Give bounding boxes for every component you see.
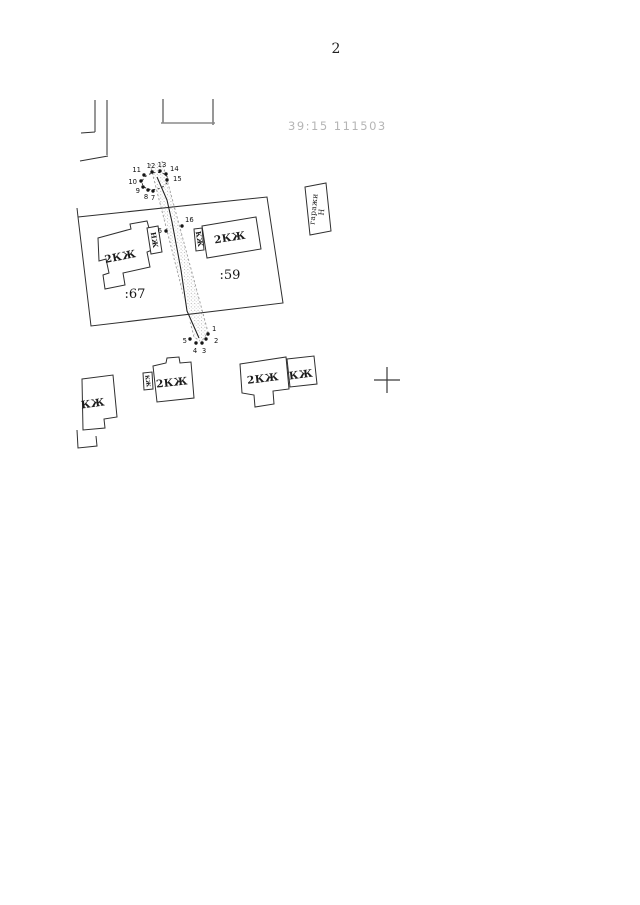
survey-point-3	[200, 341, 203, 344]
survey-point-8	[146, 188, 149, 191]
point-label-15: 15	[173, 175, 182, 183]
survey-point-6	[164, 229, 167, 232]
partial-building-nw	[80, 100, 108, 161]
parcel-59-label: :59	[220, 268, 241, 283]
survey-point-15	[165, 178, 168, 181]
grid-cross-icon	[374, 367, 400, 393]
cadastral-quarter-label: 39:15 111503	[288, 119, 387, 133]
point-label-12: 12	[147, 162, 156, 170]
survey-point-14	[164, 172, 167, 175]
survey-point-10	[139, 179, 142, 182]
point-label-13: 13	[158, 161, 167, 169]
point-label-3: 3	[202, 347, 206, 355]
point-label-10: 10	[128, 178, 137, 186]
survey-point-1	[206, 332, 209, 335]
point-label-9: 9	[136, 187, 140, 195]
point-label-2: 2	[214, 337, 218, 345]
survey-point-16	[180, 224, 183, 227]
point-label-7: 7	[151, 194, 155, 202]
survey-point-7	[151, 189, 154, 192]
survey-point-4	[194, 341, 197, 344]
survey-point-2	[204, 337, 207, 340]
garage-mark-label: Н	[317, 208, 327, 216]
partial-building-n-walls	[163, 99, 213, 125]
point-label-4: 4	[193, 347, 197, 355]
point-label-5: 5	[183, 337, 187, 345]
point-label-11: 11	[132, 166, 141, 174]
point-label-8: 8	[144, 193, 148, 201]
cadastral-plan-drawing: 2 39:15 111503	[0, 0, 640, 905]
survey-point-9	[141, 185, 144, 188]
parcel-67-label: :67	[125, 287, 146, 302]
survey-point-11	[142, 173, 145, 176]
scanned-plan-page: 2 39:15 111503	[0, 0, 640, 905]
point-label-14: 14	[170, 165, 179, 173]
survey-point-12	[150, 170, 153, 173]
building-w-extension	[77, 430, 97, 448]
survey-point-5	[188, 337, 191, 340]
survey-point-13	[158, 169, 161, 172]
point-label-1: 1	[212, 325, 216, 333]
point-label-16: 16	[185, 216, 194, 224]
parcel-boundary-overshoot	[77, 208, 78, 217]
page-number: 2	[332, 41, 341, 57]
